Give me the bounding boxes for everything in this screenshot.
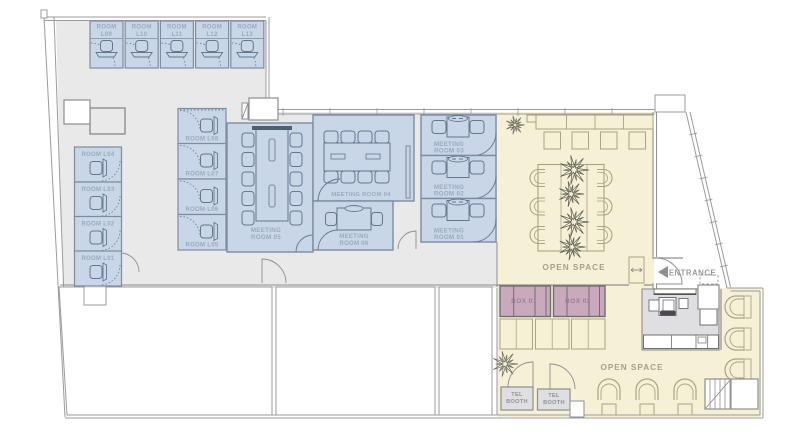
svg-text:ENTRANCE: ENTRANCE xyxy=(669,269,716,278)
svg-text:ROOM L02: ROOM L02 xyxy=(81,222,114,228)
svg-text:ROOM L06: ROOM L06 xyxy=(185,207,218,213)
svg-text:ROOM L07: ROOM L07 xyxy=(185,172,218,178)
svg-text:ROOM: ROOM xyxy=(237,25,257,31)
svg-text:BOX 02: BOX 02 xyxy=(565,298,591,305)
svg-text:MEETING: MEETING xyxy=(251,227,281,234)
svg-text:ROOM 01: ROOM 01 xyxy=(434,234,464,241)
svg-text:MEETING ROOM 04: MEETING ROOM 04 xyxy=(331,192,391,198)
svg-text:OPEN SPACE: OPEN SPACE xyxy=(600,363,663,372)
svg-text:ROOM 05: ROOM 05 xyxy=(251,234,281,241)
svg-text:TEL: TEL xyxy=(511,392,523,398)
svg-text:TEL: TEL xyxy=(548,393,560,399)
svg-text:ROOM L01: ROOM L01 xyxy=(81,256,114,262)
svg-text:ROOM 02: ROOM 02 xyxy=(434,191,464,198)
svg-text:ROOM L04: ROOM L04 xyxy=(81,152,114,158)
svg-text:OPEN SPACE: OPEN SPACE xyxy=(542,263,605,272)
svg-text:ROOM: ROOM xyxy=(167,25,187,31)
svg-text:MEETING: MEETING xyxy=(339,234,368,240)
svg-text:ROOM: ROOM xyxy=(97,25,117,31)
svg-text:L10: L10 xyxy=(136,32,148,38)
svg-text:L09: L09 xyxy=(101,32,113,38)
svg-text:ROOM: ROOM xyxy=(132,25,152,31)
svg-text:ROOM L05: ROOM L05 xyxy=(185,243,218,249)
svg-text:ROOM: ROOM xyxy=(202,25,222,31)
svg-text:L13: L13 xyxy=(242,32,254,38)
svg-text:BOX 01: BOX 01 xyxy=(511,298,537,305)
svg-text:ROOM L08: ROOM L08 xyxy=(185,137,218,143)
svg-text:L12: L12 xyxy=(206,32,218,38)
svg-text:ROOM L03: ROOM L03 xyxy=(81,187,114,193)
svg-text:ROOM 06: ROOM 06 xyxy=(339,241,368,247)
svg-text:BOOTH: BOOTH xyxy=(543,400,565,406)
svg-text:BOOTH: BOOTH xyxy=(506,399,528,405)
svg-text:ROOM 03: ROOM 03 xyxy=(434,148,464,155)
svg-text:L11: L11 xyxy=(171,32,182,38)
